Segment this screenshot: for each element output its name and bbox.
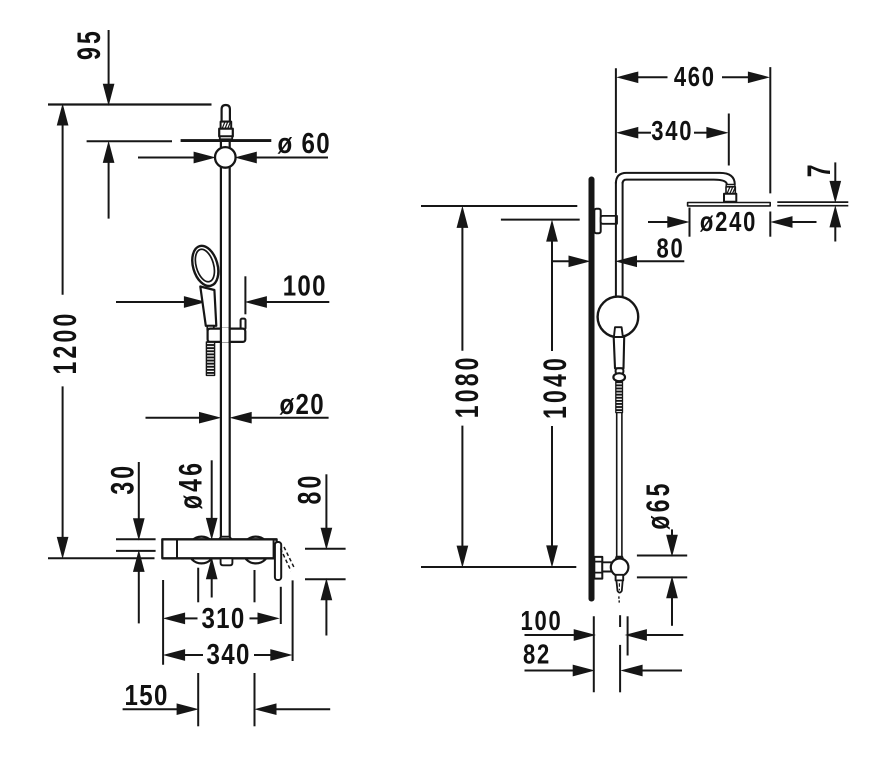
svg-text:80: 80 (657, 233, 685, 264)
svg-text:ø46: ø46 (173, 460, 209, 509)
svg-text:ø240: ø240 (700, 207, 757, 238)
svg-text:7: 7 (801, 161, 837, 177)
svg-text:ø65: ø65 (640, 480, 676, 529)
svg-text:100: 100 (521, 606, 563, 637)
svg-text:ø20: ø20 (280, 388, 325, 421)
svg-text:80: 80 (292, 473, 328, 505)
svg-text:150: 150 (125, 679, 169, 712)
svg-text:310: 310 (201, 602, 245, 635)
svg-text:460: 460 (674, 62, 716, 93)
svg-text:30: 30 (105, 463, 141, 495)
svg-text:1040: 1040 (537, 355, 573, 419)
svg-text:82: 82 (523, 639, 551, 670)
svg-text:340: 340 (207, 638, 251, 671)
svg-text:1200: 1200 (47, 311, 83, 375)
svg-text:ø 60: ø 60 (278, 127, 331, 160)
svg-text:340: 340 (651, 116, 693, 147)
svg-text:100: 100 (283, 269, 327, 302)
svg-text:95: 95 (71, 28, 107, 60)
svg-text:1080: 1080 (449, 354, 485, 418)
